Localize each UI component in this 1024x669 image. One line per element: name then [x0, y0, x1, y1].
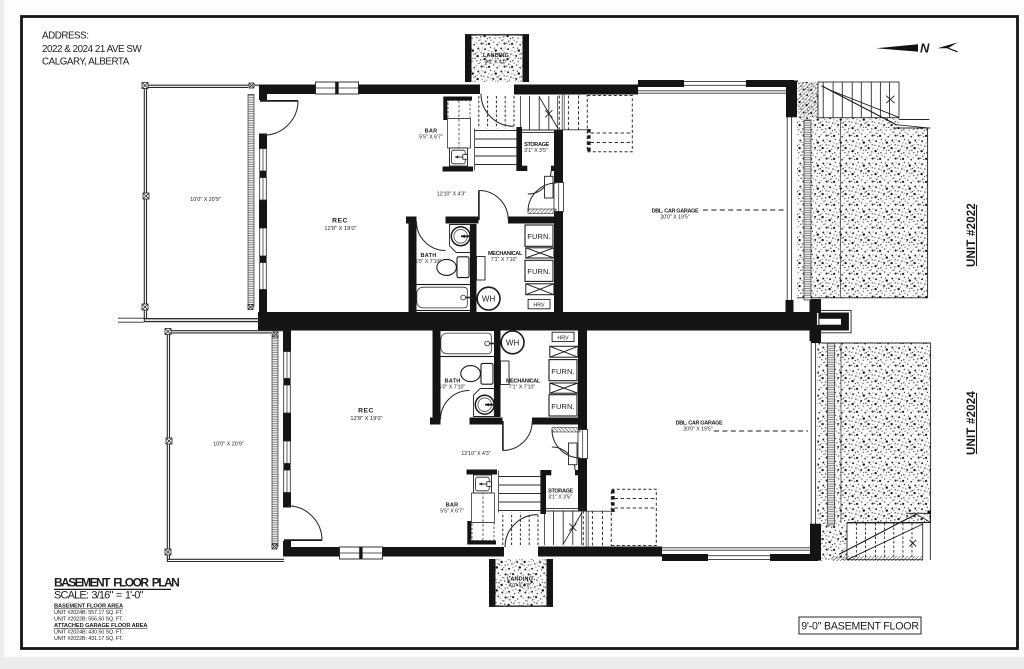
svg-text:7'1" X 7'10": 7'1" X 7'10" — [491, 257, 518, 263]
svg-text:20'0" X 19'5": 20'0" X 19'5" — [683, 427, 712, 433]
svg-text:10'0" X 20'9": 10'0" X 20'9" — [190, 197, 221, 203]
svg-text:BATH: BATH — [445, 378, 461, 384]
svg-text:REC: REC — [332, 218, 348, 225]
svg-text:REC: REC — [358, 408, 374, 415]
svg-text:BATH: BATH — [421, 253, 437, 259]
svg-text:WH: WH — [482, 295, 496, 304]
svg-text:UNIT #2022B: 431.17 SQ. FT.: UNIT #2022B: 431.17 SQ. FT. — [54, 636, 123, 642]
svg-text:FURN.: FURN. — [527, 267, 550, 276]
svg-text:12'10" X 4'3": 12'10" X 4'3" — [437, 191, 466, 197]
svg-text:BAR: BAR — [446, 503, 459, 509]
svg-text:3'1" X 3'5": 3'1" X 3'5" — [548, 495, 572, 501]
svg-text:FURN.: FURN. — [551, 402, 574, 411]
svg-text:BASEMENT FLOOR AREA: BASEMENT FLOOR AREA — [54, 604, 123, 610]
svg-text:UNIT #2022B: 556.50 SQ. FT.: UNIT #2022B: 556.50 SQ. FT. — [54, 616, 123, 622]
svg-text:FURN.: FURN. — [551, 367, 574, 376]
svg-text:HRV: HRV — [557, 335, 569, 341]
svg-text:BASEMENT FLOOR PLAN: BASEMENT FLOOR PLAN — [54, 576, 179, 590]
svg-text:12'10" X 4'3": 12'10" X 4'3" — [461, 451, 490, 457]
svg-text:LANDING: LANDING — [507, 577, 533, 583]
svg-text:CALGARY, ALBERTA: CALGARY, ALBERTA — [42, 56, 130, 67]
svg-text:STORAGE: STORAGE — [524, 142, 549, 148]
svg-text:FURN.: FURN. — [527, 232, 550, 241]
svg-text:WH: WH — [506, 338, 520, 347]
svg-text:UNIT #2024B: 557.17 SQ. FT.: UNIT #2024B: 557.17 SQ. FT. — [54, 610, 123, 616]
svg-text:5'0" X 7'10": 5'0" X 7'10" — [415, 259, 442, 265]
svg-text:5'0" X 7'10": 5'0" X 7'10" — [439, 385, 466, 391]
svg-text:UNIT #2024B: 430.50 SQ. FT.: UNIT #2024B: 430.50 SQ. FT. — [54, 630, 123, 636]
svg-text:4'0" X 4'0": 4'0" X 4'0" — [509, 583, 532, 589]
svg-text:2022 & 2024 21 AVE SW: 2022 & 2024 21 AVE SW — [42, 44, 142, 55]
svg-text:20'0" X 19'5": 20'0" X 19'5" — [660, 215, 689, 221]
svg-text:SCALE: 3/16" = 1'-0": SCALE: 3/16" = 1'-0" — [54, 590, 143, 602]
svg-text:ADDRESS:: ADDRESS: — [42, 31, 89, 42]
svg-text:STORAGE: STORAGE — [548, 488, 573, 494]
svg-text:9'-0" BASEMENT FLOOR: 9'-0" BASEMENT FLOOR — [801, 621, 919, 633]
svg-text:LANDING: LANDING — [483, 53, 509, 59]
svg-text:10'0" X 20'9": 10'0" X 20'9" — [213, 442, 244, 448]
svg-text:5'5" X 6'7": 5'5" X 6'7" — [440, 509, 464, 515]
svg-text:HRV: HRV — [533, 303, 545, 309]
svg-text:N: N — [920, 41, 930, 56]
svg-text:3'1" X 3'5": 3'1" X 3'5" — [524, 148, 548, 154]
svg-text:ATTACHED GARAGE FLOOR AREA: ATTACHED GARAGE FLOOR AREA — [54, 623, 147, 629]
svg-text:7'1" X 7'10": 7'1" X 7'10" — [509, 384, 536, 390]
svg-text:5'5" X 6'7": 5'5" X 6'7" — [419, 134, 443, 140]
svg-text:12'8" X 19'0": 12'8" X 19'0" — [350, 416, 382, 422]
svg-text:12'8" X 19'0": 12'8" X 19'0" — [324, 226, 356, 232]
svg-text:4'0" X 4'0": 4'0" X 4'0" — [485, 59, 508, 65]
